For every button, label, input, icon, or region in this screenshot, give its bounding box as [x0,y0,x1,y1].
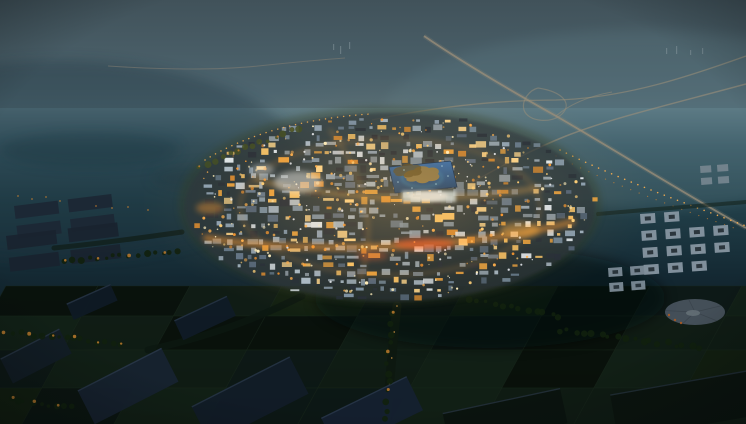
aerial-scene-canvas [0,0,746,424]
aerial-photo [0,0,746,424]
vignette [0,0,746,424]
